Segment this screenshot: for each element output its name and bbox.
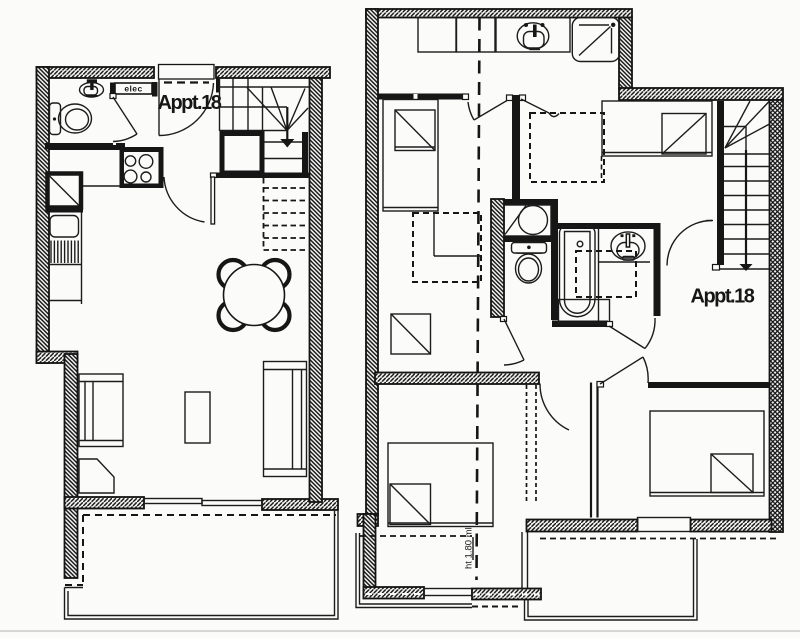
svg-text:Appt.18: Appt.18 xyxy=(691,286,755,308)
svg-text:elec: elec xyxy=(124,84,142,94)
svg-text:Appt.18: Appt.18 xyxy=(158,92,222,114)
